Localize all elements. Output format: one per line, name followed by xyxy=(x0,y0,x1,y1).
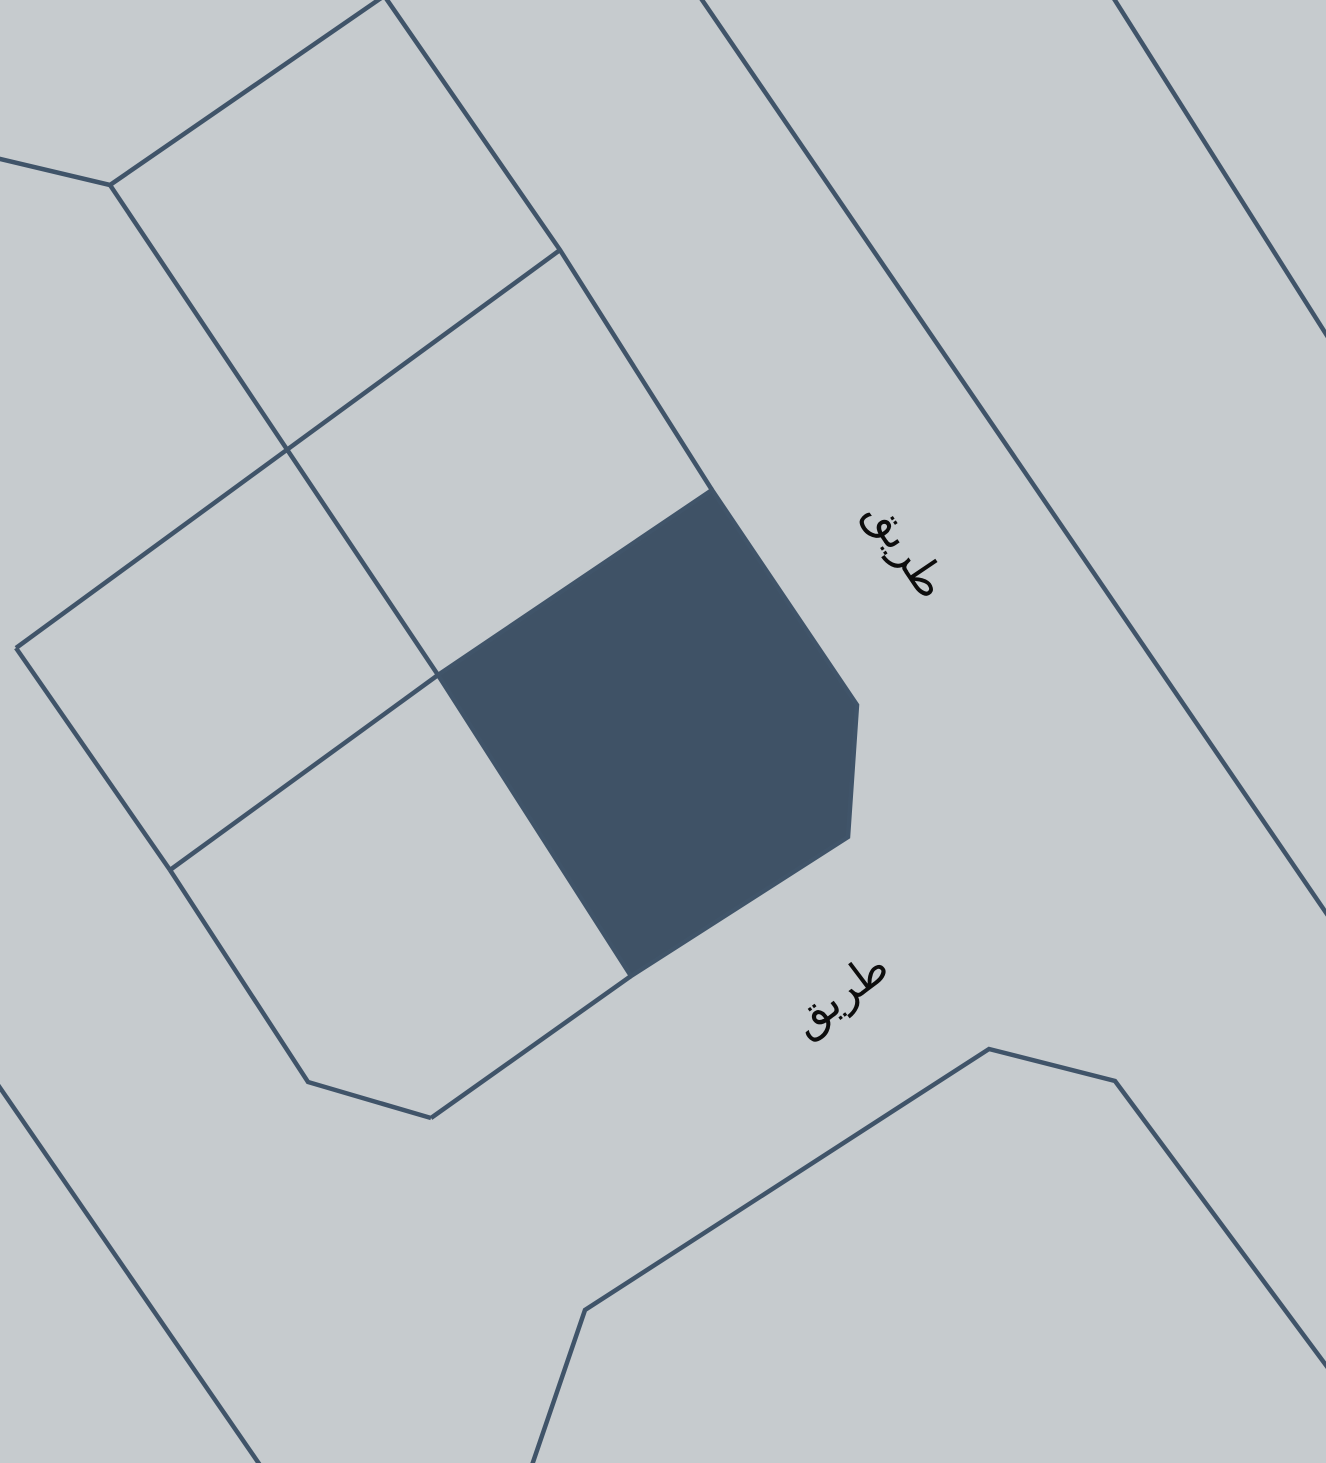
cadastral-map: طريقطريق xyxy=(0,0,1326,1463)
map-canvas[interactable]: طريقطريق xyxy=(0,0,1326,1463)
